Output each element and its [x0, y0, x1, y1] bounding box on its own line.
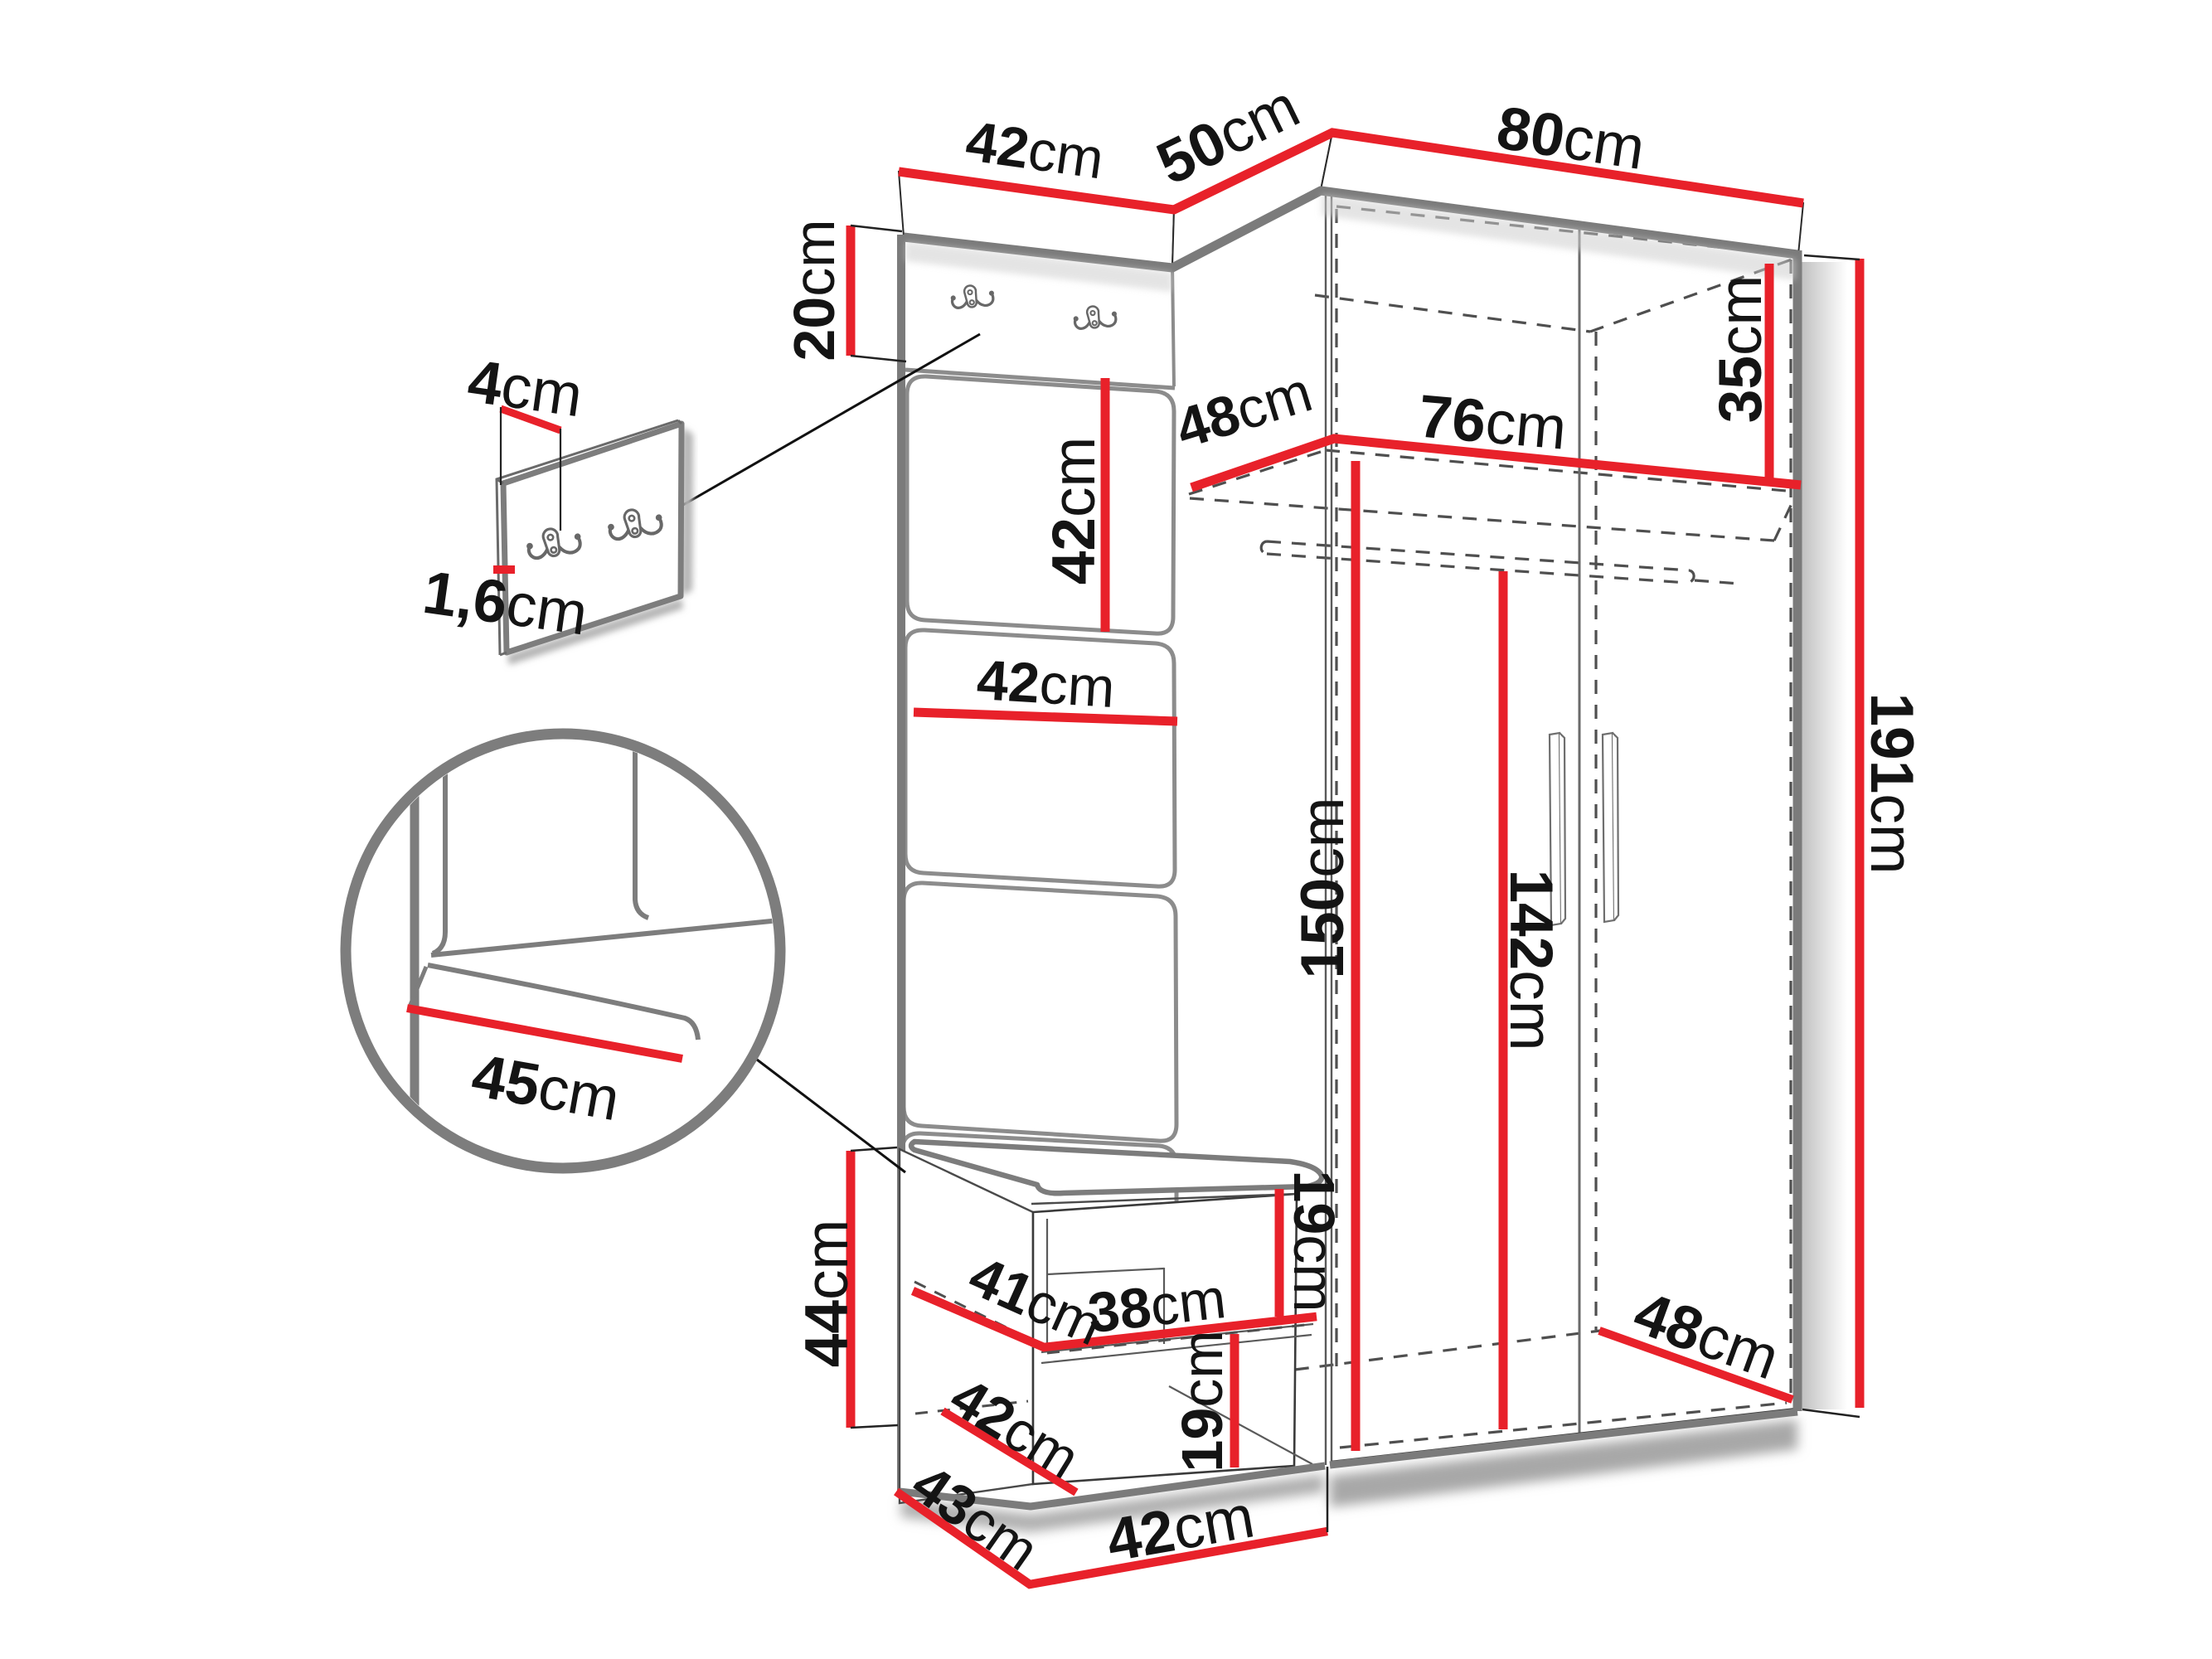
svg-text:42cm: 42cm	[975, 648, 1117, 720]
svg-text:44cm: 44cm	[793, 1220, 861, 1368]
svg-text:19cm: 19cm	[1170, 1330, 1235, 1472]
svg-text:142cm: 142cm	[1497, 869, 1564, 1050]
svg-text:20cm: 20cm	[782, 219, 846, 361]
svg-text:42cm: 42cm	[1041, 437, 1108, 585]
svg-text:19cm: 19cm	[1282, 1170, 1346, 1312]
svg-text:35cm: 35cm	[1707, 275, 1774, 424]
svg-text:191cm: 191cm	[1858, 692, 1925, 874]
svg-text:76cm: 76cm	[1416, 382, 1569, 462]
svg-text:150cm: 150cm	[1289, 797, 1356, 978]
